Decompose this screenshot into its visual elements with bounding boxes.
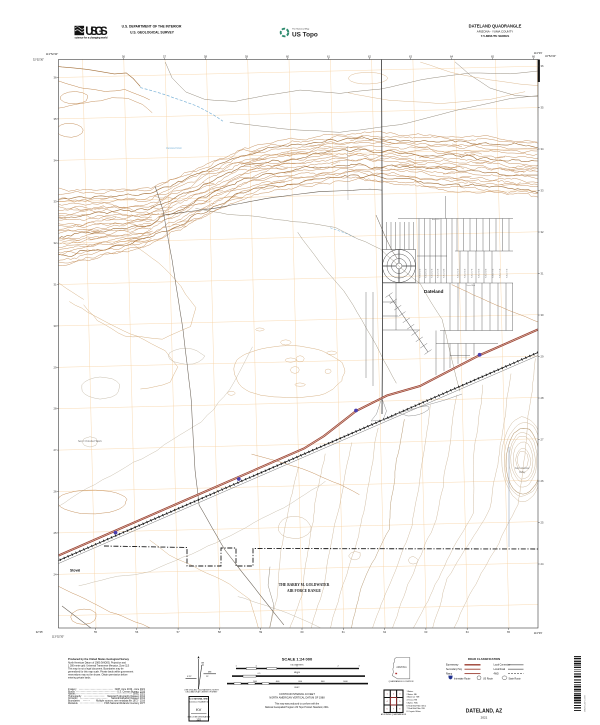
svg-text:THE BARRY M. GOLDWATER: THE BARRY M. GOLDWATER xyxy=(279,583,330,587)
svg-text:34: 34 xyxy=(54,158,57,162)
svg-text:12S: 12S xyxy=(196,717,201,721)
svg-text:31: 31 xyxy=(541,272,544,276)
svg-text:ARIZONA - YUMA COUNTY: ARIZONA - YUMA COUNTY xyxy=(477,29,513,33)
svg-text:KV: KV xyxy=(196,707,202,712)
svg-text:55: 55 xyxy=(94,630,97,634)
svg-text:10000: 10000 xyxy=(343,681,348,683)
svg-text:Valley: Valley xyxy=(519,471,526,474)
svg-text:60: 60 xyxy=(301,630,304,634)
svg-text:31: 31 xyxy=(54,283,57,287)
svg-text:7.5-MINUTE SERIES: 7.5-MINUTE SERIES xyxy=(481,34,510,38)
svg-text:S Ave 65 E: S Ave 65 E xyxy=(456,268,459,278)
svg-text:35: 35 xyxy=(54,117,57,121)
svg-text:US Route: US Route xyxy=(483,677,494,680)
svg-text:2 Aztec NE: 2 Aztec NE xyxy=(407,693,418,696)
svg-text:National Geospatial Program US: National Geospatial Program US Topo Prod… xyxy=(265,706,330,709)
svg-text:66: 66 xyxy=(532,55,535,59)
svg-text:entering private lands.: entering private lands. xyxy=(68,676,91,679)
svg-text:science for a changing world: science for a changing world xyxy=(75,35,108,39)
svg-text:3 Avenue 76E: 3 Avenue 76E xyxy=(407,696,421,699)
svg-text:S Ave 70 E: S Ave 70 E xyxy=(491,268,494,278)
svg-text:Stoval: Stoval xyxy=(70,569,80,573)
svg-text:The National Map: The National Map xyxy=(292,27,310,30)
svg-text:Dateland Wash: Dateland Wash xyxy=(165,147,183,150)
svg-text:32°52'30": 32°52'30" xyxy=(33,58,44,62)
svg-text:30: 30 xyxy=(541,313,544,317)
svg-text:Ave 64 E: Ave 64 E xyxy=(432,218,440,221)
svg-text:62: 62 xyxy=(383,630,386,634)
svg-text:ADJOINING QUADRANGLES: ADJOINING QUADRANGLES xyxy=(381,713,407,716)
svg-text:100,000-m SQUARE ID: 100,000-m SQUARE ID xyxy=(189,700,209,703)
svg-text:AIR FORCE RANGE: AIR FORCE RANGE xyxy=(287,589,322,593)
svg-text:North American Datum of 1983 (: North American Datum of 1983 (NAD83). Pr… xyxy=(68,661,127,664)
svg-text:8000: 8000 xyxy=(321,681,325,683)
svg-text:36: 36 xyxy=(54,76,57,80)
svg-text:25: 25 xyxy=(541,521,544,525)
svg-text:2000: 2000 xyxy=(253,681,257,683)
svg-text:US Topo: US Topo xyxy=(292,31,318,38)
svg-text:35: 35 xyxy=(541,106,544,110)
svg-text:63: 63 xyxy=(409,55,412,59)
svg-text:generalized for this map scale: generalized for this map scale. Private … xyxy=(68,670,134,673)
svg-text:32°45': 32°45' xyxy=(36,630,44,634)
svg-text:65: 65 xyxy=(507,630,510,634)
svg-text:32°52'30": 32°52'30" xyxy=(545,54,556,58)
svg-text:58: 58 xyxy=(204,55,207,59)
svg-text:S Ave 67 E: S Ave 67 E xyxy=(470,268,473,278)
svg-text:NORTH AMERICAN VERTICAL DATUM: NORTH AMERICAN VERTICAL DATUM OF 1988 xyxy=(269,697,325,700)
svg-text:S Ave 71 E: S Ave 71 E xyxy=(498,268,501,278)
svg-text:USGS 1247 13747: USGS 1247 13747 xyxy=(585,694,587,712)
svg-text:GN: GN xyxy=(201,663,205,665)
svg-text:1 000-meter grid: Universal Tr: 1 000-meter grid: Universal Transverse M… xyxy=(68,664,130,667)
svg-text:64: 64 xyxy=(466,630,469,634)
svg-text:6000: 6000 xyxy=(298,681,302,683)
svg-text:QUADRANGLE LOCATION: QUADRANGLE LOCATION xyxy=(389,680,414,683)
svg-text:29: 29 xyxy=(54,365,57,369)
svg-text:113°45': 113°45' xyxy=(534,51,543,55)
svg-text:DATELAND, AZ: DATELAND, AZ xyxy=(466,709,502,715)
svg-text:Local Connector: Local Connector xyxy=(494,664,511,667)
svg-text:Secondary Hwy: Secondary Hwy xyxy=(446,668,463,671)
svg-text:DECLINATION AT CENTER OF SHEET: DECLINATION AT CENTER OF SHEET xyxy=(186,691,219,694)
svg-text:U.S. NATIONAL GRID: U.S. NATIONAL GRID xyxy=(190,698,209,701)
svg-text:reservations may not be shown.: reservations may not be shown. Obtain pe… xyxy=(68,673,128,676)
svg-text:4000: 4000 xyxy=(276,681,280,683)
svg-text:27: 27 xyxy=(54,448,57,452)
svg-text:59: 59 xyxy=(245,55,248,59)
svg-text:113°45': 113°45' xyxy=(534,631,543,635)
svg-text:58: 58 xyxy=(218,630,221,634)
svg-text:Expressway: Expressway xyxy=(446,664,459,667)
svg-text:28: 28 xyxy=(541,396,544,400)
svg-text:U.S. GEOLOGICAL SURVEY: U.S. GEOLOGICAL SURVEY xyxy=(130,30,175,34)
svg-text:S Ave 62 E: S Ave 62 E xyxy=(430,268,433,278)
svg-text:26: 26 xyxy=(541,479,544,483)
svg-text:Produced by the United States: Produced by the United States Geological… xyxy=(68,657,130,661)
svg-text:32: 32 xyxy=(541,230,544,234)
svg-text:29: 29 xyxy=(541,355,544,359)
svg-text:This map is not a legal docume: This map is not a legal document. Bounda… xyxy=(68,667,124,670)
svg-text:11°: 11° xyxy=(206,676,209,678)
svg-text:56: 56 xyxy=(122,55,125,59)
svg-text:ARIZONA: ARIZONA xyxy=(396,666,407,669)
svg-text:57: 57 xyxy=(177,630,180,634)
svg-text:34: 34 xyxy=(541,147,544,151)
svg-text:113°52'30": 113°52'30" xyxy=(52,635,64,639)
svg-text:5 Aztec Hills: 5 Aztec Hills xyxy=(407,701,418,704)
svg-text:S Ave 68 E: S Ave 68 E xyxy=(477,268,480,278)
svg-text:1 Aztec: 1 Aztec xyxy=(407,690,414,693)
svg-text:59: 59 xyxy=(259,630,262,634)
svg-text:7 Red Bluff Mtn SW: 7 Red Bluff Mtn SW xyxy=(407,707,425,710)
svg-text:8 Coyote Water: 8 Coyote Water xyxy=(407,710,422,713)
svg-text:SCALE 1:24 000: SCALE 1:24 000 xyxy=(282,657,313,662)
svg-text:S Ave 69 E: S Ave 69 E xyxy=(484,268,487,278)
svg-text:Interstate Route: Interstate Route xyxy=(454,677,471,680)
svg-text:State Route: State Route xyxy=(509,677,522,680)
svg-text:Local Road: Local Road xyxy=(494,669,506,671)
svg-text:2021: 2021 xyxy=(481,716,488,720)
svg-text:S Ave 60 E: S Ave 60 E xyxy=(418,268,421,278)
svg-text:FWS National Wetlands Inventor: FWS National Wetlands Inventory 1977 xyxy=(104,702,145,705)
svg-text:36: 36 xyxy=(541,64,544,68)
svg-text:San Cristobal: San Cristobal xyxy=(515,467,530,470)
svg-text:24: 24 xyxy=(541,562,544,566)
svg-text:62: 62 xyxy=(368,55,371,59)
svg-text:S Ave 66 E: S Ave 66 E xyxy=(463,268,466,278)
svg-text:33: 33 xyxy=(54,200,57,204)
svg-text:S Ave 63 E: S Ave 63 E xyxy=(436,268,439,278)
svg-text:60: 60 xyxy=(286,55,289,59)
svg-text:Wetlands: Wetlands xyxy=(68,702,78,705)
svg-text:56: 56 xyxy=(135,630,138,634)
svg-text:61: 61 xyxy=(327,55,330,59)
svg-text:Dateland: Dateland xyxy=(424,289,444,294)
svg-text:33: 33 xyxy=(541,189,544,193)
svg-text:S Ave 61 E: S Ave 61 E xyxy=(424,268,427,278)
svg-text:FEET: FEET xyxy=(294,687,300,689)
svg-text:27: 27 xyxy=(541,438,544,442)
svg-text:This map was produced to confo: This map was produced to conform with th… xyxy=(275,703,320,706)
svg-text:S Ave 72 E: S Ave 72 E xyxy=(505,268,508,278)
svg-text:28: 28 xyxy=(54,407,57,411)
svg-text:24: 24 xyxy=(54,572,57,576)
svg-text:32: 32 xyxy=(54,241,57,245)
svg-text:25: 25 xyxy=(54,531,57,535)
svg-text:65: 65 xyxy=(491,55,494,59)
svg-text:30: 30 xyxy=(54,324,57,328)
svg-text:ROAD CLASSIFICATION: ROAD CLASSIFICATION xyxy=(468,657,500,661)
svg-text:4 Texas Hill: 4 Texas Hill xyxy=(407,700,418,702)
svg-text:U.S. DEPARTMENT OF THE INTERIO: U.S. DEPARTMENT OF THE INTERIOR xyxy=(122,25,182,29)
svg-text:4WD: 4WD xyxy=(494,673,499,675)
svg-text:0°22': 0°22' xyxy=(187,676,192,678)
svg-text:Oasis Blvd: Oasis Blvd xyxy=(466,285,475,287)
svg-text:61: 61 xyxy=(342,630,345,634)
svg-text:S Ave 64 E: S Ave 64 E xyxy=(442,268,445,278)
svg-text:DATELAND QUADRANGLE: DATELAND QUADRANGLE xyxy=(469,23,522,28)
svg-text:26: 26 xyxy=(54,490,57,494)
svg-text:113°52'30": 113°52'30" xyxy=(46,52,58,56)
svg-text:6 Red Bluff Mtn West: 6 Red Bluff Mtn West xyxy=(407,704,427,707)
svg-text:MN: MN xyxy=(208,672,212,674)
svg-text:63: 63 xyxy=(424,630,427,634)
svg-text:57: 57 xyxy=(163,55,166,59)
svg-text:San Cristobal Wash: San Cristobal Wash xyxy=(78,439,102,443)
svg-text:64: 64 xyxy=(450,55,453,59)
svg-text:Ramp: Ramp xyxy=(446,673,453,675)
